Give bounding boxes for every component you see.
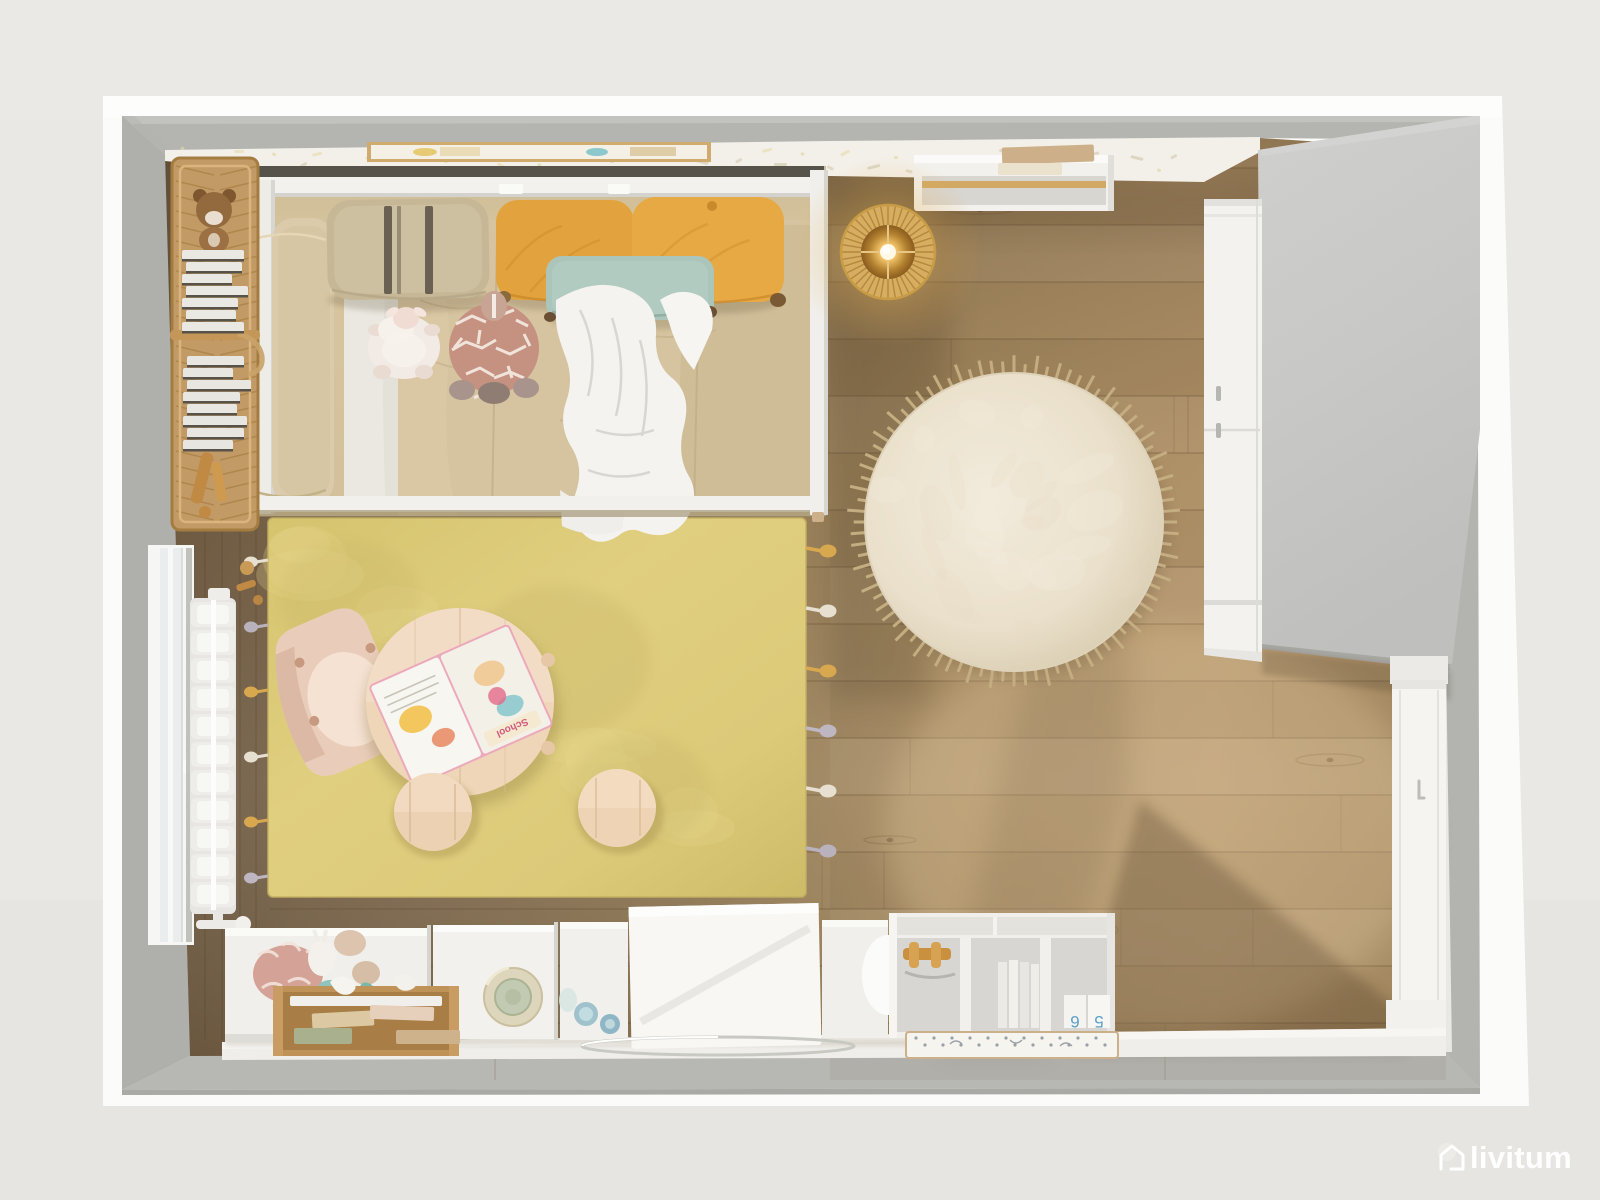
svg-text:5: 5 bbox=[1094, 1012, 1103, 1031]
svg-text:livitum: livitum bbox=[1470, 1140, 1572, 1175]
svg-text:6: 6 bbox=[1070, 1012, 1079, 1031]
